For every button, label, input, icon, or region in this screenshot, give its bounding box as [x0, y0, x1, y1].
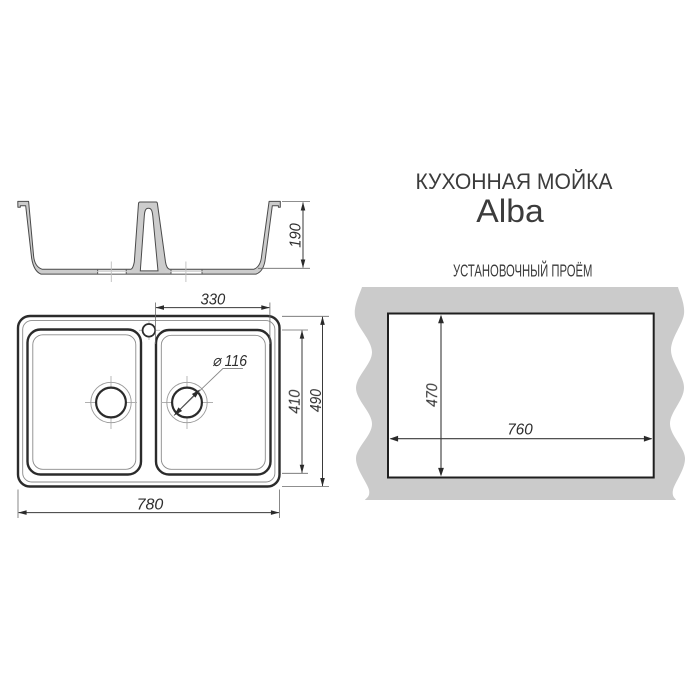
- svg-text:Alba: Alba: [476, 193, 544, 229]
- svg-text:КУХОННАЯ МОЙКА: КУХОННАЯ МОЙКА: [416, 169, 613, 194]
- svg-text:330: 330: [201, 292, 226, 309]
- svg-text:410: 410: [287, 390, 304, 414]
- svg-text:780: 780: [137, 497, 164, 514]
- svg-text:⌀ 116: ⌀ 116: [212, 353, 247, 370]
- svg-text:470: 470: [424, 383, 441, 407]
- svg-text:190: 190: [288, 223, 305, 247]
- svg-text:490: 490: [308, 389, 325, 412]
- svg-text:760: 760: [507, 422, 532, 439]
- svg-text:УСТАНОВОЧНЫЙ ПРОЁМ: УСТАНОВОЧНЫЙ ПРОЁМ: [453, 261, 593, 281]
